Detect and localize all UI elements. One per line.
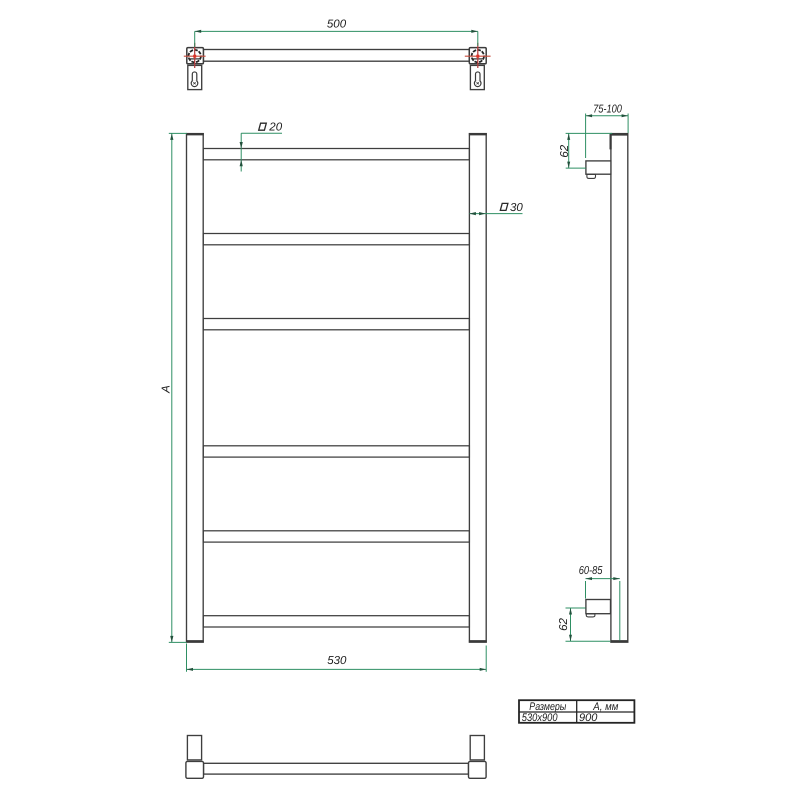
svg-text:75-100: 75-100 [593, 103, 622, 115]
svg-text:A: A [161, 385, 173, 394]
svg-text:530: 530 [327, 655, 347, 667]
svg-text:20: 20 [268, 122, 282, 134]
svg-text:Размеры: Размеры [529, 701, 566, 713]
svg-text:30: 30 [510, 202, 523, 214]
svg-text:900: 900 [579, 712, 598, 724]
svg-text:62: 62 [558, 618, 570, 631]
svg-text:62: 62 [559, 144, 571, 157]
svg-text:60-85: 60-85 [579, 565, 603, 577]
svg-text:530x900: 530x900 [522, 712, 558, 724]
svg-text:500: 500 [327, 19, 347, 31]
svg-text:А, мм: А, мм [592, 701, 618, 713]
